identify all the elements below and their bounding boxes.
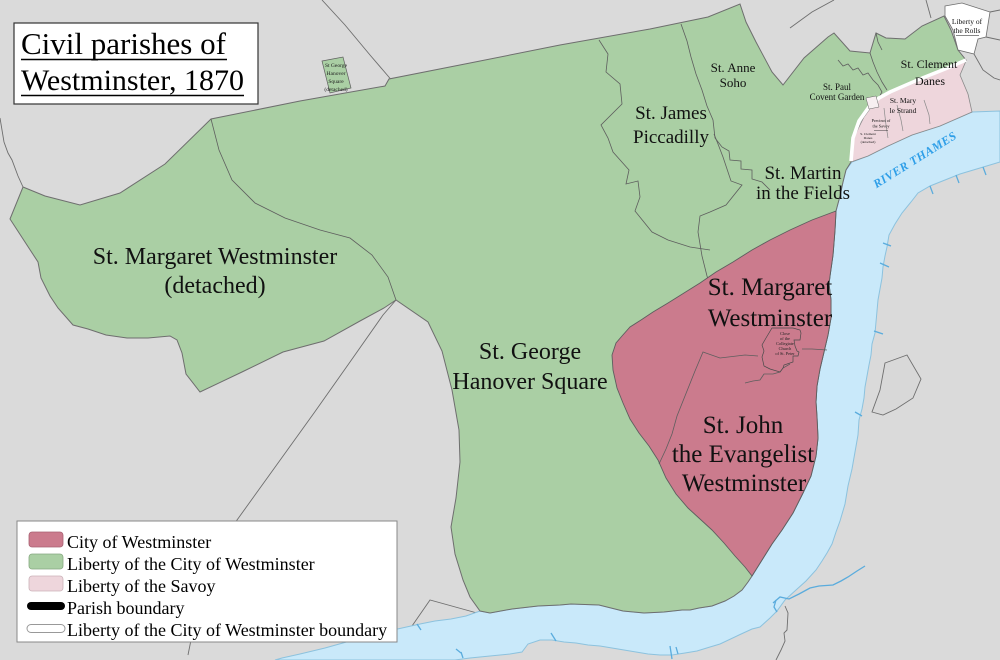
- svg-text:Westminster: Westminster: [682, 470, 807, 497]
- svg-text:Danes: Danes: [915, 74, 945, 88]
- svg-text:St. John: St. John: [703, 412, 784, 439]
- svg-text:City of Westminster: City of Westminster: [67, 532, 211, 552]
- svg-text:St. Margaret Westminster: St. Margaret Westminster: [93, 244, 337, 270]
- svg-text:Westminster, 1870: Westminster, 1870: [21, 64, 244, 97]
- svg-text:Liberty of: Liberty of: [952, 17, 983, 26]
- svg-text:St. Clement: St. Clement: [901, 57, 958, 71]
- svg-text:Liberty of the City of Westmin: Liberty of the City of Westminster bound…: [67, 620, 387, 640]
- svg-text:Precinct of: Precinct of: [872, 118, 891, 123]
- svg-text:(detached): (detached): [861, 140, 877, 144]
- svg-text:St. Martin: St. Martin: [764, 163, 842, 184]
- svg-text:Hanover: Hanover: [327, 71, 346, 77]
- svg-text:St George: St George: [325, 63, 348, 69]
- svg-text:of St. Peter: of St. Peter: [775, 351, 795, 356]
- svg-text:(detached): (detached): [324, 86, 347, 93]
- svg-text:Civil parishes of: Civil parishes of: [21, 26, 227, 61]
- svg-text:Soho: Soho: [720, 75, 747, 90]
- svg-text:Square: Square: [328, 79, 344, 85]
- svg-text:(detached): (detached): [164, 273, 265, 299]
- svg-text:St. Margaret: St. Margaret: [708, 274, 833, 301]
- svg-text:St. George: St. George: [479, 339, 581, 365]
- svg-text:St. James: St. James: [635, 103, 707, 124]
- svg-text:St. Mary: St. Mary: [890, 96, 917, 105]
- svg-text:Parish boundary: Parish boundary: [67, 598, 184, 618]
- svg-text:the Rolls: the Rolls: [954, 26, 981, 35]
- svg-text:Liberty of the City of Westmin: Liberty of the City of Westminster: [67, 554, 315, 574]
- svg-text:St. Anne: St. Anne: [711, 60, 756, 75]
- svg-text:the Evangelist: the Evangelist: [672, 441, 814, 468]
- svg-text:Westminster: Westminster: [708, 305, 833, 332]
- svg-text:St. Paul: St. Paul: [823, 82, 852, 92]
- svg-text:the Savoy: the Savoy: [872, 124, 890, 129]
- svg-text:Hanover Square: Hanover Square: [452, 369, 607, 395]
- svg-text:le Strand: le Strand: [890, 106, 917, 115]
- svg-text:Covent Garden: Covent Garden: [810, 92, 865, 102]
- svg-text:in the Fields: in the Fields: [756, 183, 850, 204]
- svg-text:Piccadilly: Piccadilly: [633, 127, 709, 148]
- svg-text:Liberty of the Savoy: Liberty of the Savoy: [67, 576, 215, 596]
